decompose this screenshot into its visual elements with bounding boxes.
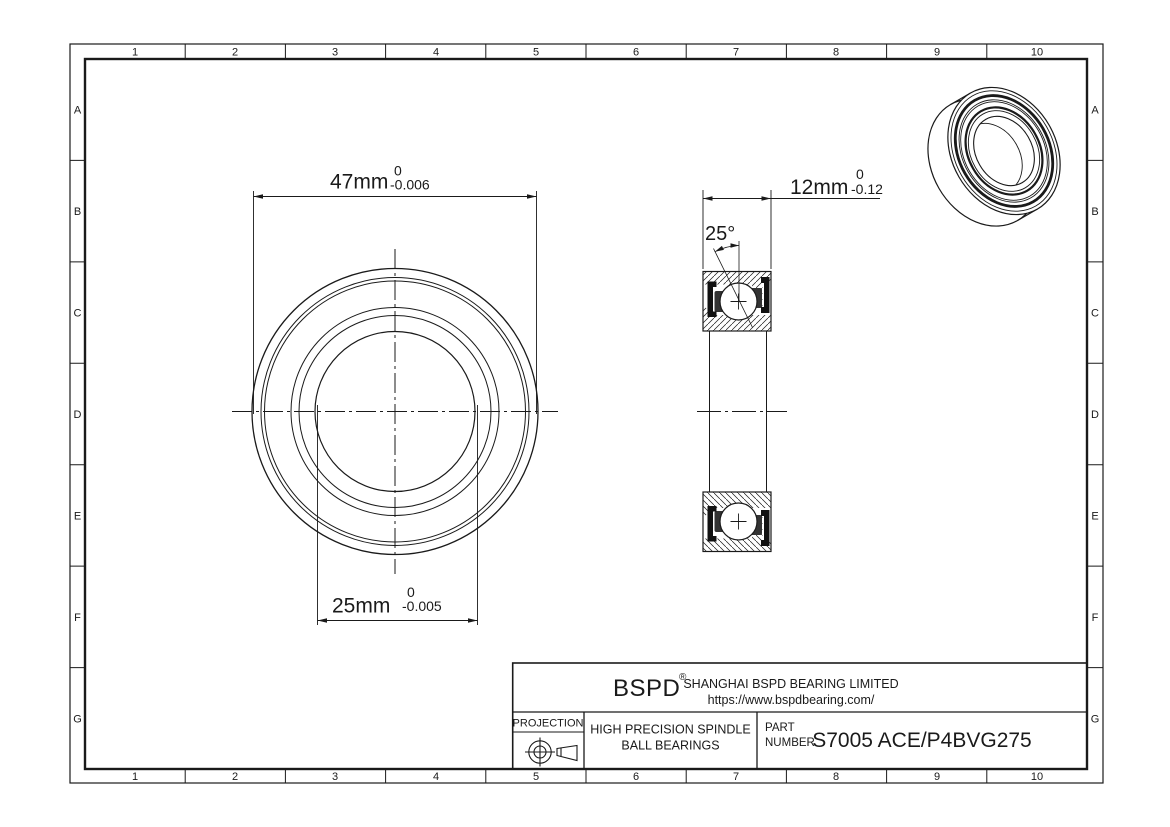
grid-row-label: E	[74, 510, 81, 522]
grid-row-label: B	[1091, 206, 1098, 218]
grid-row-label: E	[1091, 510, 1098, 522]
dim-od-value: 47mm	[330, 171, 388, 194]
title-block: BSPD ® SHANGHAI BSPD BEARING LIMITED htt…	[513, 663, 1087, 769]
part-number: S7005 ACE/P4BVG275	[812, 729, 1032, 752]
grid-row-label: C	[74, 308, 82, 320]
drawing-canvas: 1 2 3 4 5 6 7 8 9 10 1 2 3 4 5 6 7 8 9 1…	[0, 0, 1170, 827]
grid-row-label: F	[74, 612, 81, 624]
product-line-2: BALL BEARINGS	[621, 739, 719, 753]
grid-column-label: 8	[833, 47, 839, 59]
product-line-1: HIGH PRECISION SPINDLE	[590, 723, 750, 737]
grid-column-label: 3	[332, 47, 338, 59]
drawing-page: 1 2 3 4 5 6 7 8 9 10 1 2 3 4 5 6 7 8 9 1…	[0, 0, 1170, 827]
arrow-left-icon	[318, 618, 328, 622]
arc-arrow-icon	[715, 246, 724, 252]
projection-label: PROJECTION	[513, 718, 584, 730]
grid-column-label: 6	[633, 771, 639, 783]
grid-column-label: 7	[733, 771, 739, 783]
grid-row-label: B	[74, 206, 81, 218]
arrow-right-icon	[762, 196, 772, 200]
dim-width-tol-upper: 0	[856, 166, 864, 182]
front-view	[232, 249, 558, 574]
arrow-left-icon	[703, 196, 713, 200]
grid-column-label: 8	[833, 771, 839, 783]
arrow-left-icon	[254, 194, 264, 198]
dim-bore-tol-lower: -0.005	[402, 598, 442, 614]
brand-logo: BSPD	[613, 675, 680, 702]
grid-row-label: A	[1091, 105, 1099, 117]
arrow-right-icon	[527, 194, 537, 198]
grid-row-labels-right: A B C D E F G	[1091, 105, 1100, 726]
grid-column-label: 2	[232, 771, 238, 783]
dimension-width: 12mm 0 -0.12	[703, 166, 883, 269]
grid-column-label: 9	[934, 47, 940, 59]
grid-column-labels-top: 1 2 3 4 5 6 7 8 9 10	[132, 47, 1043, 59]
grid-column-label: 7	[733, 47, 739, 59]
part-label-1: PART	[765, 722, 795, 734]
dim-width-tol-lower: -0.12	[851, 181, 883, 197]
grid-row-label: G	[73, 713, 82, 725]
grid-column-label: 3	[332, 771, 338, 783]
arrow-right-icon	[468, 618, 478, 622]
first-angle-projection-icon	[525, 738, 577, 767]
grid-column-label: 10	[1031, 47, 1043, 59]
company-name: SHANGHAI BSPD BEARING LIMITED	[683, 677, 898, 691]
grid-column-label: 9	[934, 771, 940, 783]
grid-row-label: C	[1091, 308, 1099, 320]
grid-row-labels-left: A B C D E F G	[73, 105, 82, 726]
grid-row-label: A	[74, 105, 82, 117]
bearing-section-half-mirror	[703, 492, 771, 552]
grid-column-label: 5	[533, 771, 539, 783]
grid-column-label: 10	[1031, 771, 1043, 783]
iso-view	[906, 67, 1083, 247]
grid-column-label: 4	[433, 771, 439, 783]
grid-column-label: 5	[533, 47, 539, 59]
dim-od-tol-lower: -0.006	[390, 177, 430, 193]
company-website: https://www.bspdbearing.com/	[708, 693, 875, 707]
grid-column-label: 6	[633, 47, 639, 59]
dim-bore-value: 25mm	[332, 595, 390, 618]
grid-row-label: G	[1091, 713, 1100, 725]
grid-row-label: D	[74, 409, 82, 421]
contact-angle-value: 25°	[705, 223, 735, 245]
grid-column-label: 4	[433, 47, 439, 59]
part-label-2: NUMBER	[765, 737, 815, 749]
grid-column-labels-bottom: 1 2 3 4 5 6 7 8 9 10	[132, 771, 1043, 783]
grid-row-label: D	[1091, 409, 1099, 421]
grid-row-label: F	[1092, 612, 1099, 624]
grid-column-label: 1	[132, 47, 138, 59]
grid-column-label: 1	[132, 771, 138, 783]
section-view	[697, 272, 787, 552]
bearing-section-half	[703, 272, 771, 332]
grid-column-label: 2	[232, 47, 238, 59]
dim-width-value: 12mm	[790, 176, 848, 199]
